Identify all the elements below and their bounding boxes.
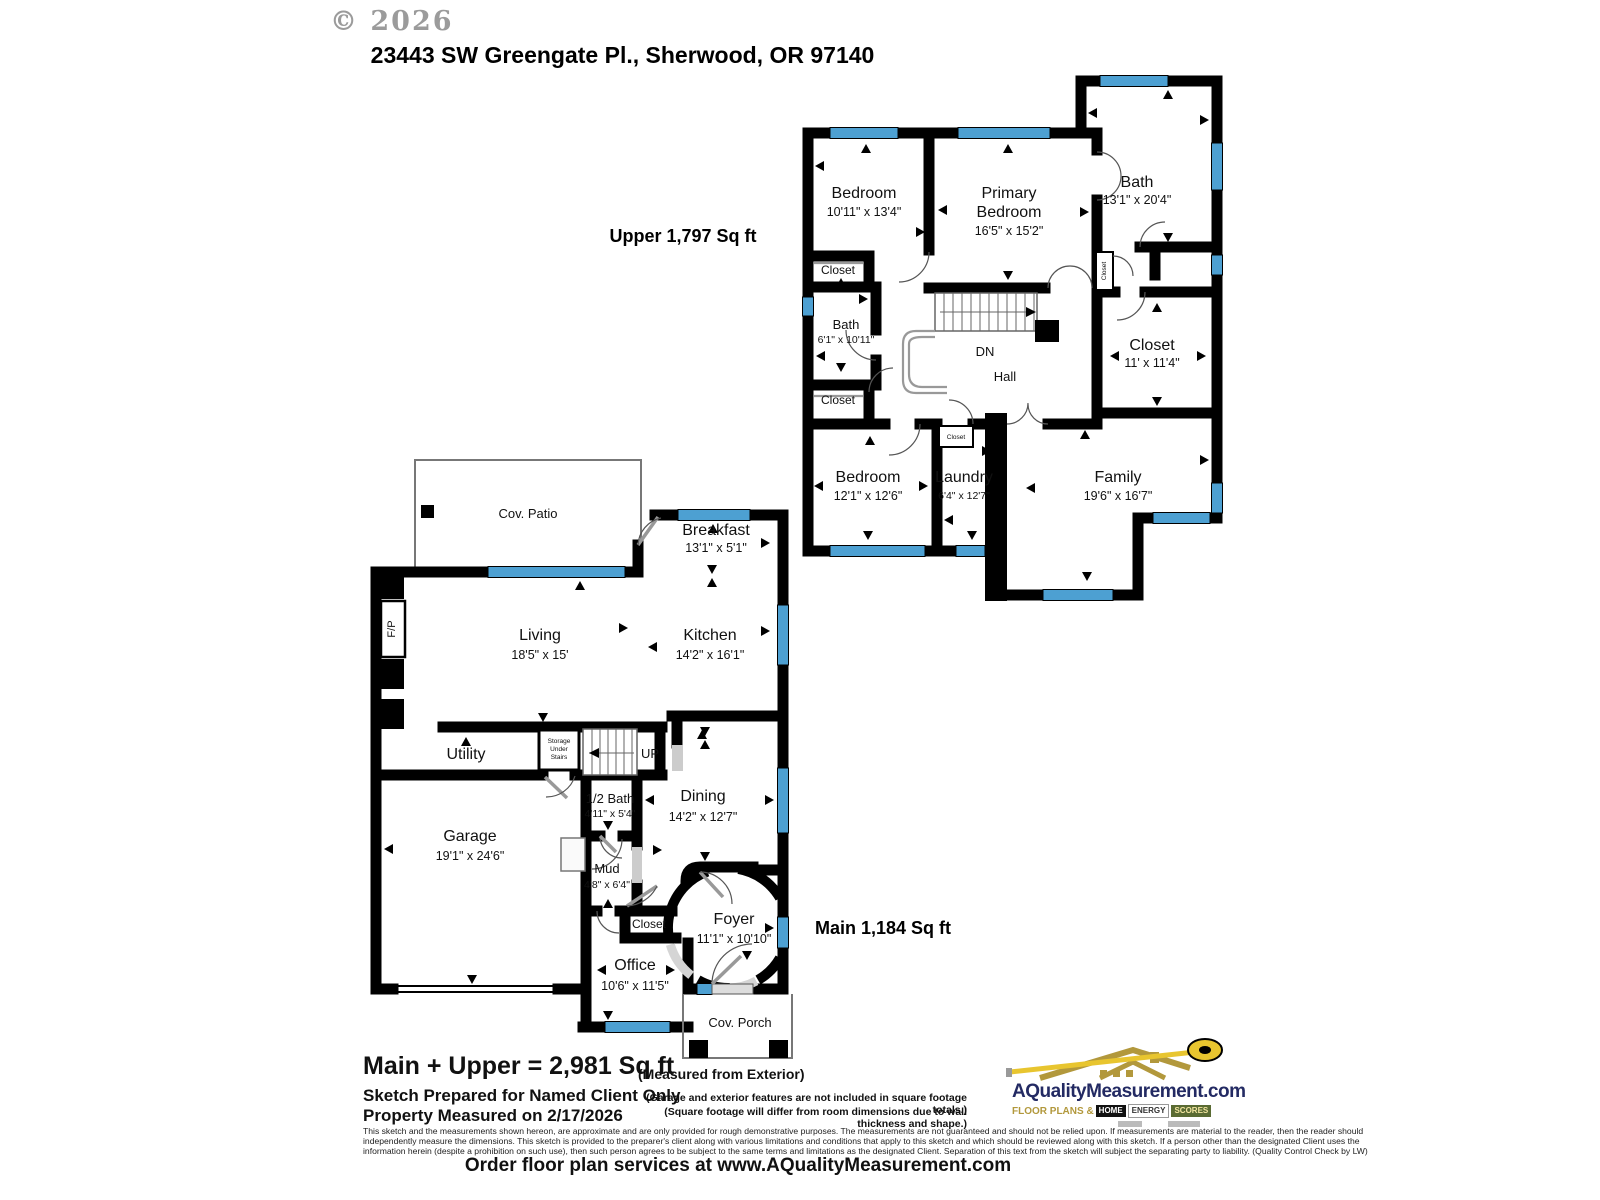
room-dims-bedroom2: 12'1" x 12'6" <box>834 489 903 503</box>
stair-newel <box>1035 320 1059 342</box>
total-sqft-line: Main + Upper = 2,981 Sq ft <box>363 1052 674 1081</box>
order-services-line: Order floor plan services at www.AQualit… <box>363 1155 1113 1177</box>
room-label-utility: Utility <box>446 746 485 763</box>
room-dims-breakfast: 13'1" x 5'1" <box>685 541 747 555</box>
room-dims-dining: 14'2" x 12'7" <box>669 810 738 824</box>
room-label-bath-closet: Closet <box>1101 262 1108 281</box>
front-door-leaf <box>712 984 753 994</box>
room-label-closet-room: Closet <box>1129 337 1175 354</box>
property-measured-line: Property Measured on 2/17/2026 <box>363 1106 623 1126</box>
room-label-bath-big: Bath <box>1121 174 1154 191</box>
room-label-closet1: Closet <box>821 263 856 277</box>
room-label-closet2: Closet <box>821 393 856 407</box>
room-label-bedroom1: Bedroom <box>832 185 897 202</box>
room-label-breakfast: Breakfast <box>682 522 750 539</box>
energy-score-microbar <box>1118 1121 1142 1127</box>
room-label-living: Living <box>519 627 561 644</box>
disclaimer-line-1: This sketch and the measurements shown h… <box>363 1126 1188 1136</box>
room-dims-kitchen: 14'2" x 16'1" <box>676 648 745 662</box>
logo-tagline: FLOOR PLANS & <box>1012 1104 1094 1118</box>
energy-score-microbar <box>1168 1121 1200 1127</box>
fireplace-structure <box>381 569 405 729</box>
stairs-dn-label: DN <box>976 344 995 359</box>
room-label-dining: Dining <box>680 788 725 805</box>
room-label-fireplace: F/P <box>386 620 398 637</box>
garage-door-line <box>393 986 558 992</box>
room-label-family: Family <box>1094 469 1141 486</box>
room-label-mud: Mud <box>594 861 619 876</box>
room-dims-bath-big: 13'1" x 20'4" <box>1103 193 1172 207</box>
room-dims-bath-small: 6'1" x 10'11" <box>818 334 875 346</box>
room-label-bedroom2: Bedroom <box>836 469 901 486</box>
room-label-storage-3: Stairs <box>551 754 568 761</box>
patio-post <box>421 505 434 518</box>
garage-entry-door-leaf <box>561 838 585 871</box>
porch-post <box>769 1040 788 1058</box>
room-label-storage-1: Storage <box>548 738 571 745</box>
porch-post <box>689 1040 708 1058</box>
room-dims-closet-room: 11' x 11'4" <box>1124 356 1179 370</box>
room-label-half-bath: 1/2 Bath <box>586 791 634 806</box>
logo-company-name: AQualityMeasurement.com <box>1012 1081 1222 1103</box>
room-label-closet-main: Closet <box>632 917 667 931</box>
room-label-primary-2: Bedroom <box>977 204 1042 221</box>
room-dims-half-bath: 4'11" x 5'4" <box>585 808 636 820</box>
room-label-garage: Garage <box>443 828 496 845</box>
energy-badge: ENERGY <box>1128 1104 1170 1118</box>
room-label-laundry: Laundry <box>935 469 993 486</box>
floor-plan-page: © 2026 23443 SW Greengate Pl., Sherwood,… <box>0 0 1600 1200</box>
room-dims-living: 18'5" x 15' <box>511 648 568 662</box>
disclaimer-line-2: independently measure the dimensions. Th… <box>363 1136 1188 1146</box>
room-dims-bedroom1: 10'11" x 13'4" <box>827 205 902 219</box>
room-dims-laundry: 6'4" x 12'7" <box>938 490 990 502</box>
room-dims-family: 19'6" x 16'7" <box>1084 489 1153 503</box>
room-dims-primary: 16'5" x 15'2" <box>975 224 1044 238</box>
room-label-foyer: Foyer <box>714 911 756 928</box>
logo-graphic <box>1006 1039 1222 1078</box>
room-label-office: Office <box>614 957 656 974</box>
upper-stairs <box>903 293 1059 393</box>
room-dims-office: 10'6" x 11'5" <box>601 979 669 993</box>
measured-from-note: (Measured from Exterior) <box>638 1066 804 1082</box>
floor-plan-drawing: Bedroom 10'11" x 13'4" Primary Bedroom 1… <box>0 0 1600 1200</box>
scores-badge: SCORES <box>1171 1105 1211 1117</box>
room-label-storage-2: Under <box>550 746 569 753</box>
room-label-primary-1: Primary <box>981 185 1036 202</box>
room-dims-foyer: 11'1" x 10'10" <box>697 932 772 946</box>
upper-plan: Bedroom 10'11" x 13'4" Primary Bedroom 1… <box>803 76 1223 601</box>
room-label-hall: Hall <box>994 369 1017 384</box>
upper-closet-fixtures <box>814 252 1113 447</box>
room-label-laundry-closet: Closet <box>947 434 966 441</box>
main-plan: Cov. Patio Breakfast 13'1" x 5'1" Living… <box>376 460 792 1058</box>
home-badge: HOME <box>1096 1105 1126 1117</box>
room-label-porch: Cov. Porch <box>708 1015 771 1030</box>
room-label-patio: Cov. Patio <box>498 506 557 521</box>
logo-tagline-row: FLOOR PLANS & HOME ENERGY SCORES <box>1012 1104 1222 1118</box>
room-dims-mud: 4'8" x 6'4" <box>584 879 630 891</box>
room-label-kitchen: Kitchen <box>683 627 736 644</box>
room-dims-garage: 19'1" x 24'6" <box>436 849 505 863</box>
room-label-bath-small: Bath <box>833 317 860 332</box>
stairs-up-label: UP <box>641 746 659 761</box>
